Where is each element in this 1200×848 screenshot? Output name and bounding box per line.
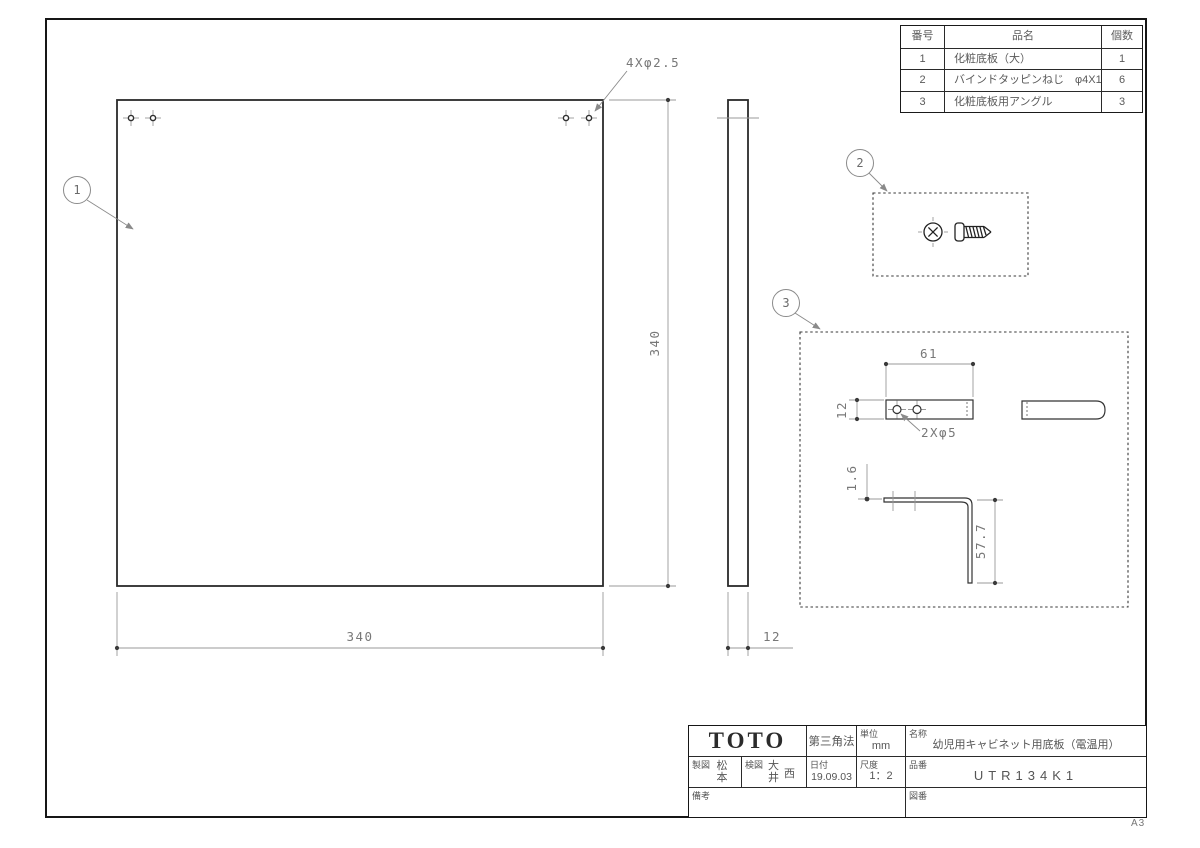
col-header-no: 番号 <box>901 26 945 48</box>
angle-width-dim-text: 12 <box>834 401 849 419</box>
main-height-dimension: 340 <box>609 98 676 588</box>
angle-leg-dim-text: 57.7 <box>973 523 988 559</box>
part-qty: 3 <box>1102 92 1142 113</box>
angle-length-dim-text: 61 <box>920 346 938 361</box>
parts-table-header: 番号 品名 個数 <box>901 26 1142 48</box>
angle-plan-view-2 <box>1022 401 1105 419</box>
scale-cell: 尺度 1：2 <box>857 757 906 787</box>
part-number-label: 品番 <box>909 758 927 771</box>
remarks-label: 備考 <box>692 789 710 802</box>
date-label: 日付 <box>810 758 828 771</box>
balloon-2-number: 2 <box>856 156 863 170</box>
title-block-row-1: TOTO 第三角法 単位 mm 名称 幼児用キャビネット用底板（電温用） <box>689 726 1146 756</box>
table-row: 2 バインドタッピンねじ φ4X10 6 <box>901 69 1142 91</box>
detail-angle: 3 61 <box>773 290 1129 608</box>
date-value: 19.09.03 <box>811 771 852 783</box>
side-view: 12 <box>717 100 793 656</box>
main-width-dimension: 340 <box>115 592 605 656</box>
hole-callout-angle-text: 2Xφ5 <box>921 425 957 440</box>
projection-cell: 第三角法 <box>807 726 857 756</box>
angle-profile-view <box>884 491 972 583</box>
projection-method: 第三角法 <box>809 733 855 749</box>
part-name: バインドタッピンねじ φ4X10 <box>945 70 1102 91</box>
unit-label: 単位 <box>860 727 878 740</box>
unit-cell: 単位 mm <box>857 726 906 756</box>
main-height-dim-text: 340 <box>647 329 662 356</box>
part-number-value: UTR134K1 <box>974 768 1078 783</box>
thickness-dimension: 12 <box>726 592 793 656</box>
part-qty: 6 <box>1102 70 1142 91</box>
main-width-dim-text: 340 <box>346 629 373 644</box>
unit-value: mm <box>872 740 890 752</box>
remarks-cell: 備考 <box>689 788 906 817</box>
drafter-label: 製図 <box>692 758 710 771</box>
thickness-dim-text: 12 <box>763 629 781 644</box>
title-block-row-3: 備考 図番 <box>689 787 1146 817</box>
drawing-number-label: 図番 <box>909 789 927 802</box>
side-view-outline <box>728 100 748 586</box>
sheet-size-label: A3 <box>1131 818 1145 829</box>
product-name: 幼児用キャビネット用底板（電温用） <box>933 736 1120 752</box>
hole-callout-main: 4Xφ2.5 <box>595 55 680 111</box>
drafter-name: 松本 <box>716 760 729 785</box>
detail-screw-boundary <box>873 193 1028 276</box>
angle-thickness-dimension: 1.6 <box>844 464 882 501</box>
main-view: 4Xφ2.5 1 340 340 <box>64 55 681 656</box>
base-plate-outline <box>117 100 603 586</box>
scale-label: 尺度 <box>860 758 878 771</box>
title-block-row-2: 製図 松本 検図 大井 西 日付 19.09.03 尺度 1：2 品番 UTR1… <box>689 756 1146 787</box>
part-number-cell: 品番 UTR134K1 <box>906 757 1146 787</box>
table-row: 1 化粧底板（大） 1 <box>901 48 1142 70</box>
checker-name-2: 西 <box>784 765 795 781</box>
angle-plan-view <box>886 400 973 419</box>
angle-thickness-dim-text: 1.6 <box>844 464 859 491</box>
part-qty: 1 <box>1102 49 1142 70</box>
balloon-2: 2 <box>847 150 888 192</box>
name-label: 名称 <box>909 727 927 740</box>
title-block: TOTO 第三角法 単位 mm 名称 幼児用キャビネット用底板（電温用） 製図 … <box>688 725 1147 818</box>
screw-head-view <box>918 217 948 247</box>
angle-width-dimension: 12 <box>834 398 884 421</box>
name-cell: 名称 幼児用キャビネット用底板（電温用） <box>906 726 1146 756</box>
part-no: 3 <box>901 92 945 113</box>
drafter-cell: 製図 松本 <box>689 757 742 787</box>
checker-cell: 検図 大井 西 <box>742 757 807 787</box>
part-no: 2 <box>901 70 945 91</box>
part-name: 化粧底板用アングル <box>945 92 1102 113</box>
hole-callout-main-text: 4Xφ2.5 <box>626 55 680 70</box>
col-header-qty: 個数 <box>1102 26 1142 48</box>
logo-cell: TOTO <box>689 726 807 756</box>
toto-logo: TOTO <box>709 728 787 754</box>
drawing-canvas: 4Xφ2.5 1 340 340 <box>0 0 1200 848</box>
date-cell: 日付 19.09.03 <box>807 757 857 787</box>
angle-length-dimension: 61 <box>884 346 975 397</box>
screw-side-view <box>955 223 991 241</box>
checker-name: 大井 <box>767 760 780 785</box>
col-header-name: 品名 <box>945 26 1102 48</box>
table-row: 3 化粧底板用アングル 3 <box>901 91 1142 113</box>
angle-leg-dimension: 57.7 <box>973 498 1003 585</box>
balloon-3-number: 3 <box>782 296 789 310</box>
part-name: 化粧底板（大） <box>945 49 1102 70</box>
detail-screw: 2 <box>847 150 1029 277</box>
drawing-number-cell: 図番 <box>906 788 1146 817</box>
checker-label: 検図 <box>745 758 763 771</box>
balloon-1-number: 1 <box>73 183 80 197</box>
balloon-3: 3 <box>773 290 821 330</box>
parts-table: 番号 品名 個数 1 化粧底板（大） 1 2 バインドタッピンねじ φ4X10 … <box>900 25 1143 113</box>
part-no: 1 <box>901 49 945 70</box>
